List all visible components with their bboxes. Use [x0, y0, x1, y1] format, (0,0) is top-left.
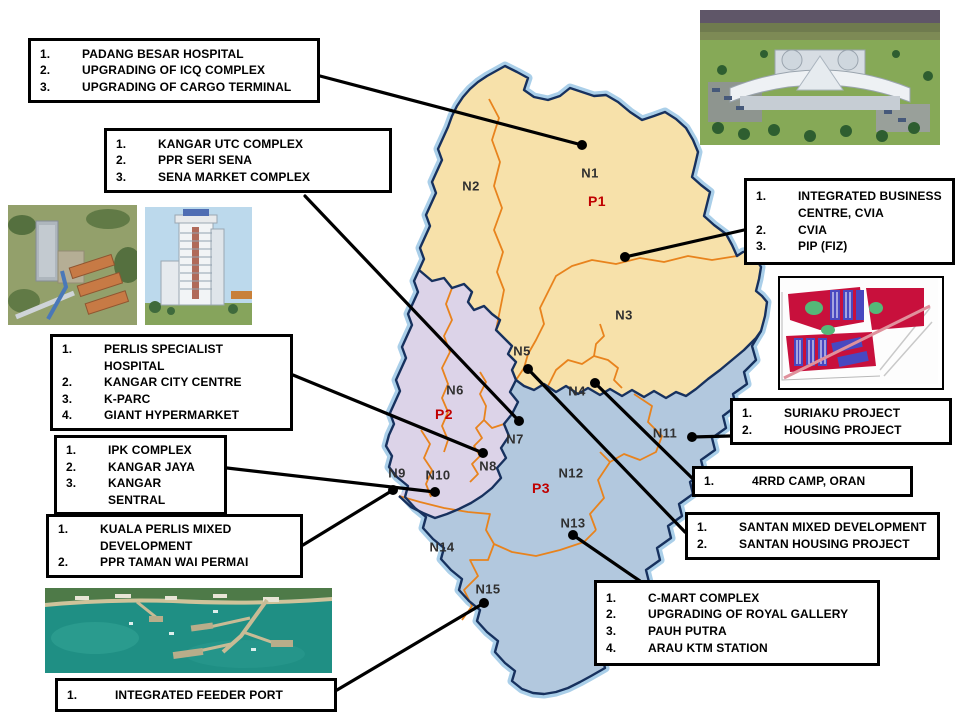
zone-label-n4: N4 [568, 384, 585, 399]
item-text: PADANG BESAR HOSPITAL [82, 46, 311, 63]
item-number: 1. [697, 519, 739, 536]
item-number: 1. [58, 521, 100, 554]
list-item: 1.SURIAKU PROJECT [742, 405, 943, 422]
item-text: SANTAN MIXED DEVELOPMENT [739, 519, 931, 536]
zone-label-n9: N9 [388, 466, 405, 481]
item-text: SENA MARKET COMPLEX [158, 169, 383, 186]
zone-label-p3: P3 [532, 480, 550, 496]
item-text: C-MART COMPLEX [648, 590, 871, 607]
map-point-n8 [478, 448, 488, 458]
map-point-n11 [687, 432, 697, 442]
item-number: 1. [606, 590, 648, 607]
item-text: ARAU KTM STATION [648, 640, 871, 657]
item-number: 3. [40, 79, 82, 96]
item-number: 2. [742, 422, 784, 439]
list-item: 2.SANTAN HOUSING PROJECT [697, 536, 931, 553]
zone-label-n6: N6 [446, 383, 463, 398]
hospital-render-shapes [700, 10, 940, 145]
item-text: INTEGRATED FEEDER PORT [115, 687, 328, 704]
list-item: 1.INTEGRATED FEEDER PORT [67, 687, 328, 704]
map-point-n3 [620, 252, 630, 262]
feeder-port-shapes [45, 588, 332, 673]
item-text: PPR SERI SENA [158, 152, 383, 169]
item-number: 4. [606, 640, 648, 657]
feeder-port-aerial-image [45, 588, 332, 673]
list-item: 1.IPK COMPLEX [66, 442, 218, 459]
zone-label-n8: N8 [479, 459, 496, 474]
zone-label-n15: N15 [475, 582, 500, 597]
item-number: 3. [756, 238, 798, 255]
item-number: 2. [697, 536, 739, 553]
zone-label-n11: N11 [653, 426, 677, 441]
list-item: 3.PAUH PUTRA [606, 623, 871, 640]
item-text: 4RRD CAMP, ORAN [752, 473, 904, 490]
slide-canvas: N2 N1 P1 N3 N5 N4 N6 P2 N7 N8 N9 N10 N11… [0, 0, 960, 720]
item-number: 1. [742, 405, 784, 422]
map-point-n4 [590, 378, 600, 388]
feeder-port-art [45, 588, 332, 673]
list-item: 2.KANGAR CITY CENTRE [62, 374, 284, 391]
list-item: 4.ARAU KTM STATION [606, 640, 871, 657]
zone-label-n5: N5 [513, 344, 530, 359]
map-point-n9 [388, 485, 398, 495]
item-text: KANGAR UTC COMPLEX [158, 136, 383, 153]
callout-feeder-port: 1.INTEGRATED FEEDER PORT [55, 678, 337, 712]
city-aerial-shapes [8, 205, 137, 325]
item-text: UPGRADING OF CARGO TERMINAL [82, 79, 311, 96]
item-number: 1. [67, 687, 115, 704]
hospital-render-art [700, 10, 940, 145]
item-number: 1. [756, 188, 798, 221]
list-item: 1.PERLIS SPECIALIST HOSPITAL [62, 341, 284, 374]
item-number: 1. [66, 442, 108, 459]
list-item: 1.SANTAN MIXED DEVELOPMENT [697, 519, 931, 536]
item-text: UPGRADING OF ROYAL GALLERY [648, 606, 871, 623]
item-number: 2. [40, 62, 82, 79]
item-number: 1. [116, 136, 158, 153]
callout-padang-besar: 1.PADANG BESAR HOSPITAL 2.UPGRADING OF I… [28, 38, 320, 103]
list-item: 2.PPR TAMAN WAI PERMAI [58, 554, 294, 571]
map-point-n1 [577, 140, 587, 150]
item-text: PIP (FIZ) [798, 238, 946, 255]
connector-santan [528, 369, 685, 532]
item-text: KANGAR JAYA [108, 459, 218, 476]
zone-label-n10: N10 [425, 468, 450, 483]
zone-label-p1: P1 [588, 193, 606, 209]
zone-label-n7: N7 [506, 432, 523, 447]
map-point-n10 [430, 487, 440, 497]
list-item: 3.KANGAR SENTRAL [66, 475, 218, 508]
list-item: 1.KUALA PERLIS MIXED DEVELOPMENT [58, 521, 294, 554]
item-number: 3. [606, 623, 648, 640]
zoning-plan-art [780, 278, 938, 384]
map-point-n13 [568, 530, 578, 540]
item-text: IPK COMPLEX [108, 442, 218, 459]
item-number: 2. [58, 554, 100, 571]
zone-label-n12: N12 [558, 466, 583, 481]
hospital-render-image [700, 10, 940, 145]
item-text: PAUH PUTRA [648, 623, 871, 640]
list-item: 3.SENA MARKET COMPLEX [116, 169, 383, 186]
item-number: 2. [62, 374, 104, 391]
list-item: 2.CVIA [756, 222, 946, 239]
connector-suriaku [692, 436, 730, 437]
connector-4rrd [595, 383, 692, 478]
p1-south-boundary [419, 270, 761, 398]
callout-santan: 1.SANTAN MIXED DEVELOPMENT 2.SANTAN HOUS… [685, 512, 940, 560]
list-item: 2.UPGRADING OF ROYAL GALLERY [606, 606, 871, 623]
item-number: 2. [66, 459, 108, 476]
connector-kangar-utc [305, 196, 519, 421]
item-number: 2. [116, 152, 158, 169]
list-item: 1.PADANG BESAR HOSPITAL [40, 46, 311, 63]
list-item: 2.PPR SERI SENA [116, 152, 383, 169]
list-item: 3.K-PARC [62, 391, 284, 408]
zone-label-n3: N3 [615, 308, 632, 323]
item-number: 1. [62, 341, 104, 374]
item-text: KANGAR CITY CENTRE [104, 374, 284, 391]
connector-feeder-port [337, 603, 484, 690]
item-number: 2. [606, 606, 648, 623]
connector-cmart [573, 535, 640, 581]
item-number: 1. [704, 473, 752, 490]
item-text: GIANT HYPERMARKET [104, 407, 284, 424]
connector-integrated-business [625, 230, 744, 257]
callout-cmart: 1.C-MART COMPLEX 2.UPGRADING OF ROYAL GA… [594, 580, 880, 666]
zone-label-p2: P2 [435, 406, 453, 422]
zone-label-n1: N1 [581, 166, 598, 181]
item-number: 1. [40, 46, 82, 63]
map-point-n5 [523, 364, 533, 374]
zone-label-n2: N2 [462, 179, 479, 194]
item-text: INTEGRATED BUSINESS CENTRE, CVIA [798, 188, 946, 221]
city-aerial-render-image [8, 205, 137, 325]
callout-kangar-utc: 1.KANGAR UTC COMPLEX 2.PPR SERI SENA 3.S… [104, 128, 392, 193]
callout-kuala-perlis: 1.KUALA PERLIS MIXED DEVELOPMENT 2.PPR T… [46, 514, 303, 578]
item-text: KANGAR SENTRAL [108, 475, 218, 508]
map-point-n15 [479, 598, 489, 608]
item-number: 3. [116, 169, 158, 186]
tower-render-shapes [145, 207, 252, 325]
item-text: SURIAKU PROJECT [784, 405, 943, 422]
p2-p3-boundary [399, 380, 518, 518]
list-item: 1.4RRD CAMP, ORAN [704, 473, 904, 490]
item-text: KUALA PERLIS MIXED DEVELOPMENT [100, 521, 294, 554]
callout-perlis-specialist: 1.PERLIS SPECIALIST HOSPITAL 2.KANGAR CI… [50, 334, 293, 431]
connector-kuala-perlis [303, 490, 393, 545]
item-number: 3. [66, 475, 108, 508]
list-item: 2.HOUSING PROJECT [742, 422, 943, 439]
callout-4rrd-camp: 1.4RRD CAMP, ORAN [692, 466, 913, 497]
item-text: HOUSING PROJECT [784, 422, 943, 439]
item-number: 2. [756, 222, 798, 239]
zoning-plan-shapes [780, 278, 938, 384]
tower-render-image [145, 207, 252, 325]
item-text: UPGRADING OF ICQ COMPLEX [82, 62, 311, 79]
list-item: 2.KANGAR JAYA [66, 459, 218, 476]
item-text: PERLIS SPECIALIST HOSPITAL [104, 341, 284, 374]
list-item: 1.KANGAR UTC COMPLEX [116, 136, 383, 153]
map-point-n7 [514, 416, 524, 426]
item-text: CVIA [798, 222, 946, 239]
list-item: 1.C-MART COMPLEX [606, 590, 871, 607]
item-number: 3. [62, 391, 104, 408]
callout-suriaku: 1.SURIAKU PROJECT 2.HOUSING PROJECT [730, 398, 952, 445]
item-text: SANTAN HOUSING PROJECT [739, 536, 931, 553]
city-aerial-art [8, 205, 137, 325]
item-number: 4. [62, 407, 104, 424]
item-text: K-PARC [104, 391, 284, 408]
tower-render-art [145, 207, 252, 325]
item-text: PPR TAMAN WAI PERMAI [100, 554, 294, 571]
callout-ipk: 1.IPK COMPLEX 2.KANGAR JAYA 3.KANGAR SEN… [54, 435, 227, 515]
list-item: 2.UPGRADING OF ICQ COMPLEX [40, 62, 311, 79]
callout-integrated-business: 1.INTEGRATED BUSINESS CENTRE, CVIA 2.CVI… [744, 178, 955, 265]
list-item: 3.UPGRADING OF CARGO TERMINAL [40, 79, 311, 96]
list-item: 3.PIP (FIZ) [756, 238, 946, 255]
zone-label-n13: N13 [560, 516, 585, 531]
list-item: 1.INTEGRATED BUSINESS CENTRE, CVIA [756, 188, 946, 221]
list-item: 4.GIANT HYPERMARKET [62, 407, 284, 424]
zone-label-n14: N14 [429, 540, 454, 555]
zoning-plan-image [778, 276, 944, 390]
